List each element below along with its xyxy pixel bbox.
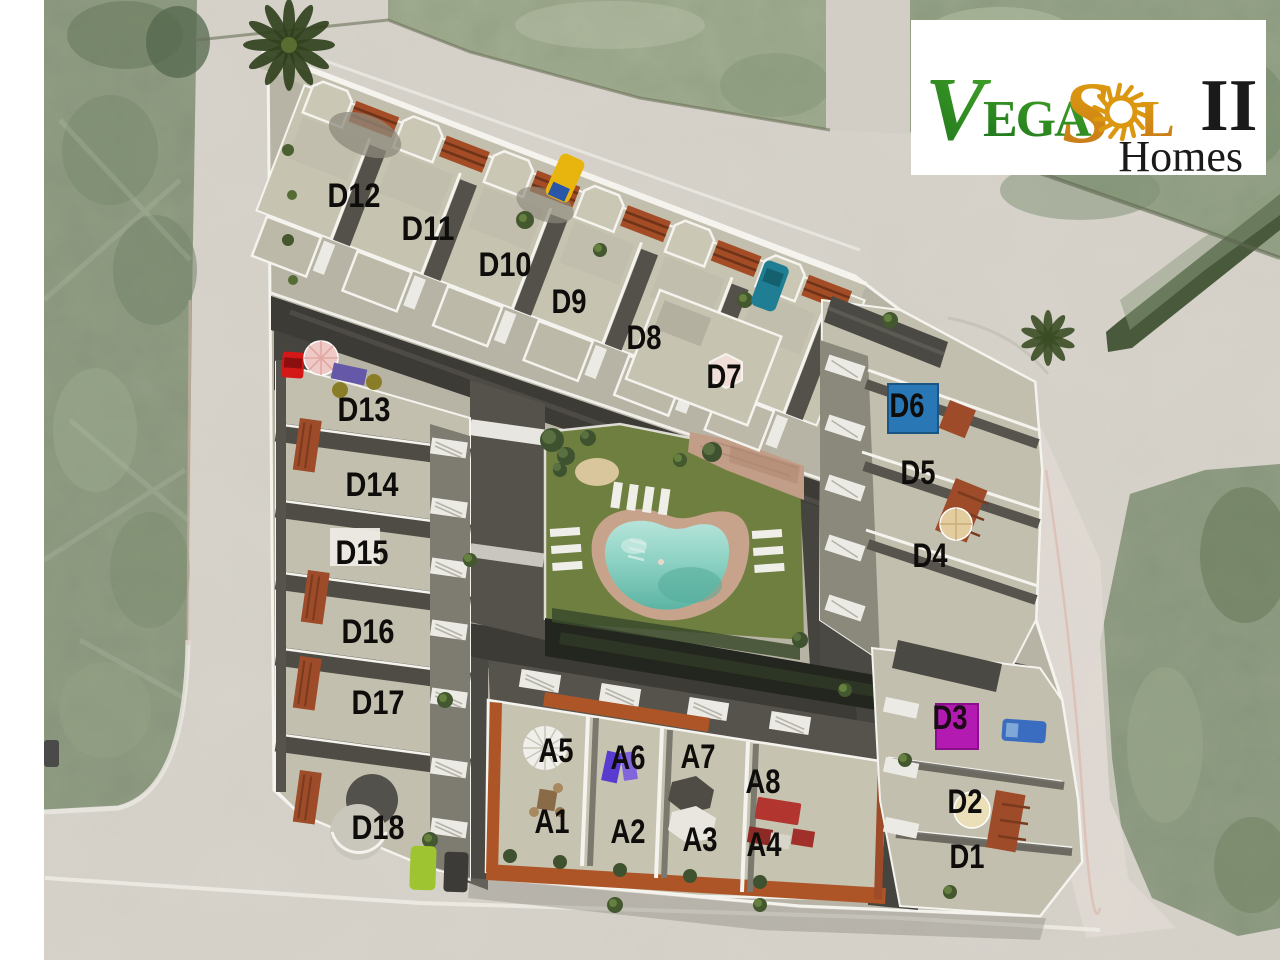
svg-text:A3: A3 [683, 821, 718, 859]
svg-text:D10: D10 [479, 246, 532, 284]
svg-text:A8: A8 [746, 763, 781, 801]
svg-text:D7: D7 [707, 358, 742, 396]
svg-text:D18: D18 [352, 809, 405, 847]
svg-text:D16: D16 [342, 613, 395, 651]
svg-text:V: V [925, 60, 992, 159]
svg-text:D1: D1 [950, 838, 985, 876]
svg-text:D3: D3 [933, 699, 968, 737]
svg-text:A6: A6 [611, 739, 646, 777]
svg-text:A4: A4 [747, 826, 782, 864]
svg-text:D6: D6 [890, 387, 925, 425]
svg-text:D2: D2 [948, 783, 983, 821]
svg-text:Homes: Homes [1118, 132, 1243, 181]
svg-text:D13: D13 [338, 391, 391, 429]
svg-text:D14: D14 [346, 466, 399, 504]
svg-text:D8: D8 [627, 319, 662, 357]
svg-text:D4: D4 [913, 537, 948, 575]
svg-text:D17: D17 [352, 684, 405, 722]
svg-text:A7: A7 [681, 738, 716, 776]
svg-text:D5: D5 [901, 454, 936, 492]
svg-text:D9: D9 [552, 283, 587, 321]
svg-text:D11: D11 [402, 210, 455, 248]
svg-text:A1: A1 [535, 803, 570, 841]
svg-text:A5: A5 [539, 732, 574, 770]
svg-text:D15: D15 [336, 534, 389, 572]
svg-text:A2: A2 [611, 813, 646, 851]
svg-text:D12: D12 [328, 177, 381, 215]
